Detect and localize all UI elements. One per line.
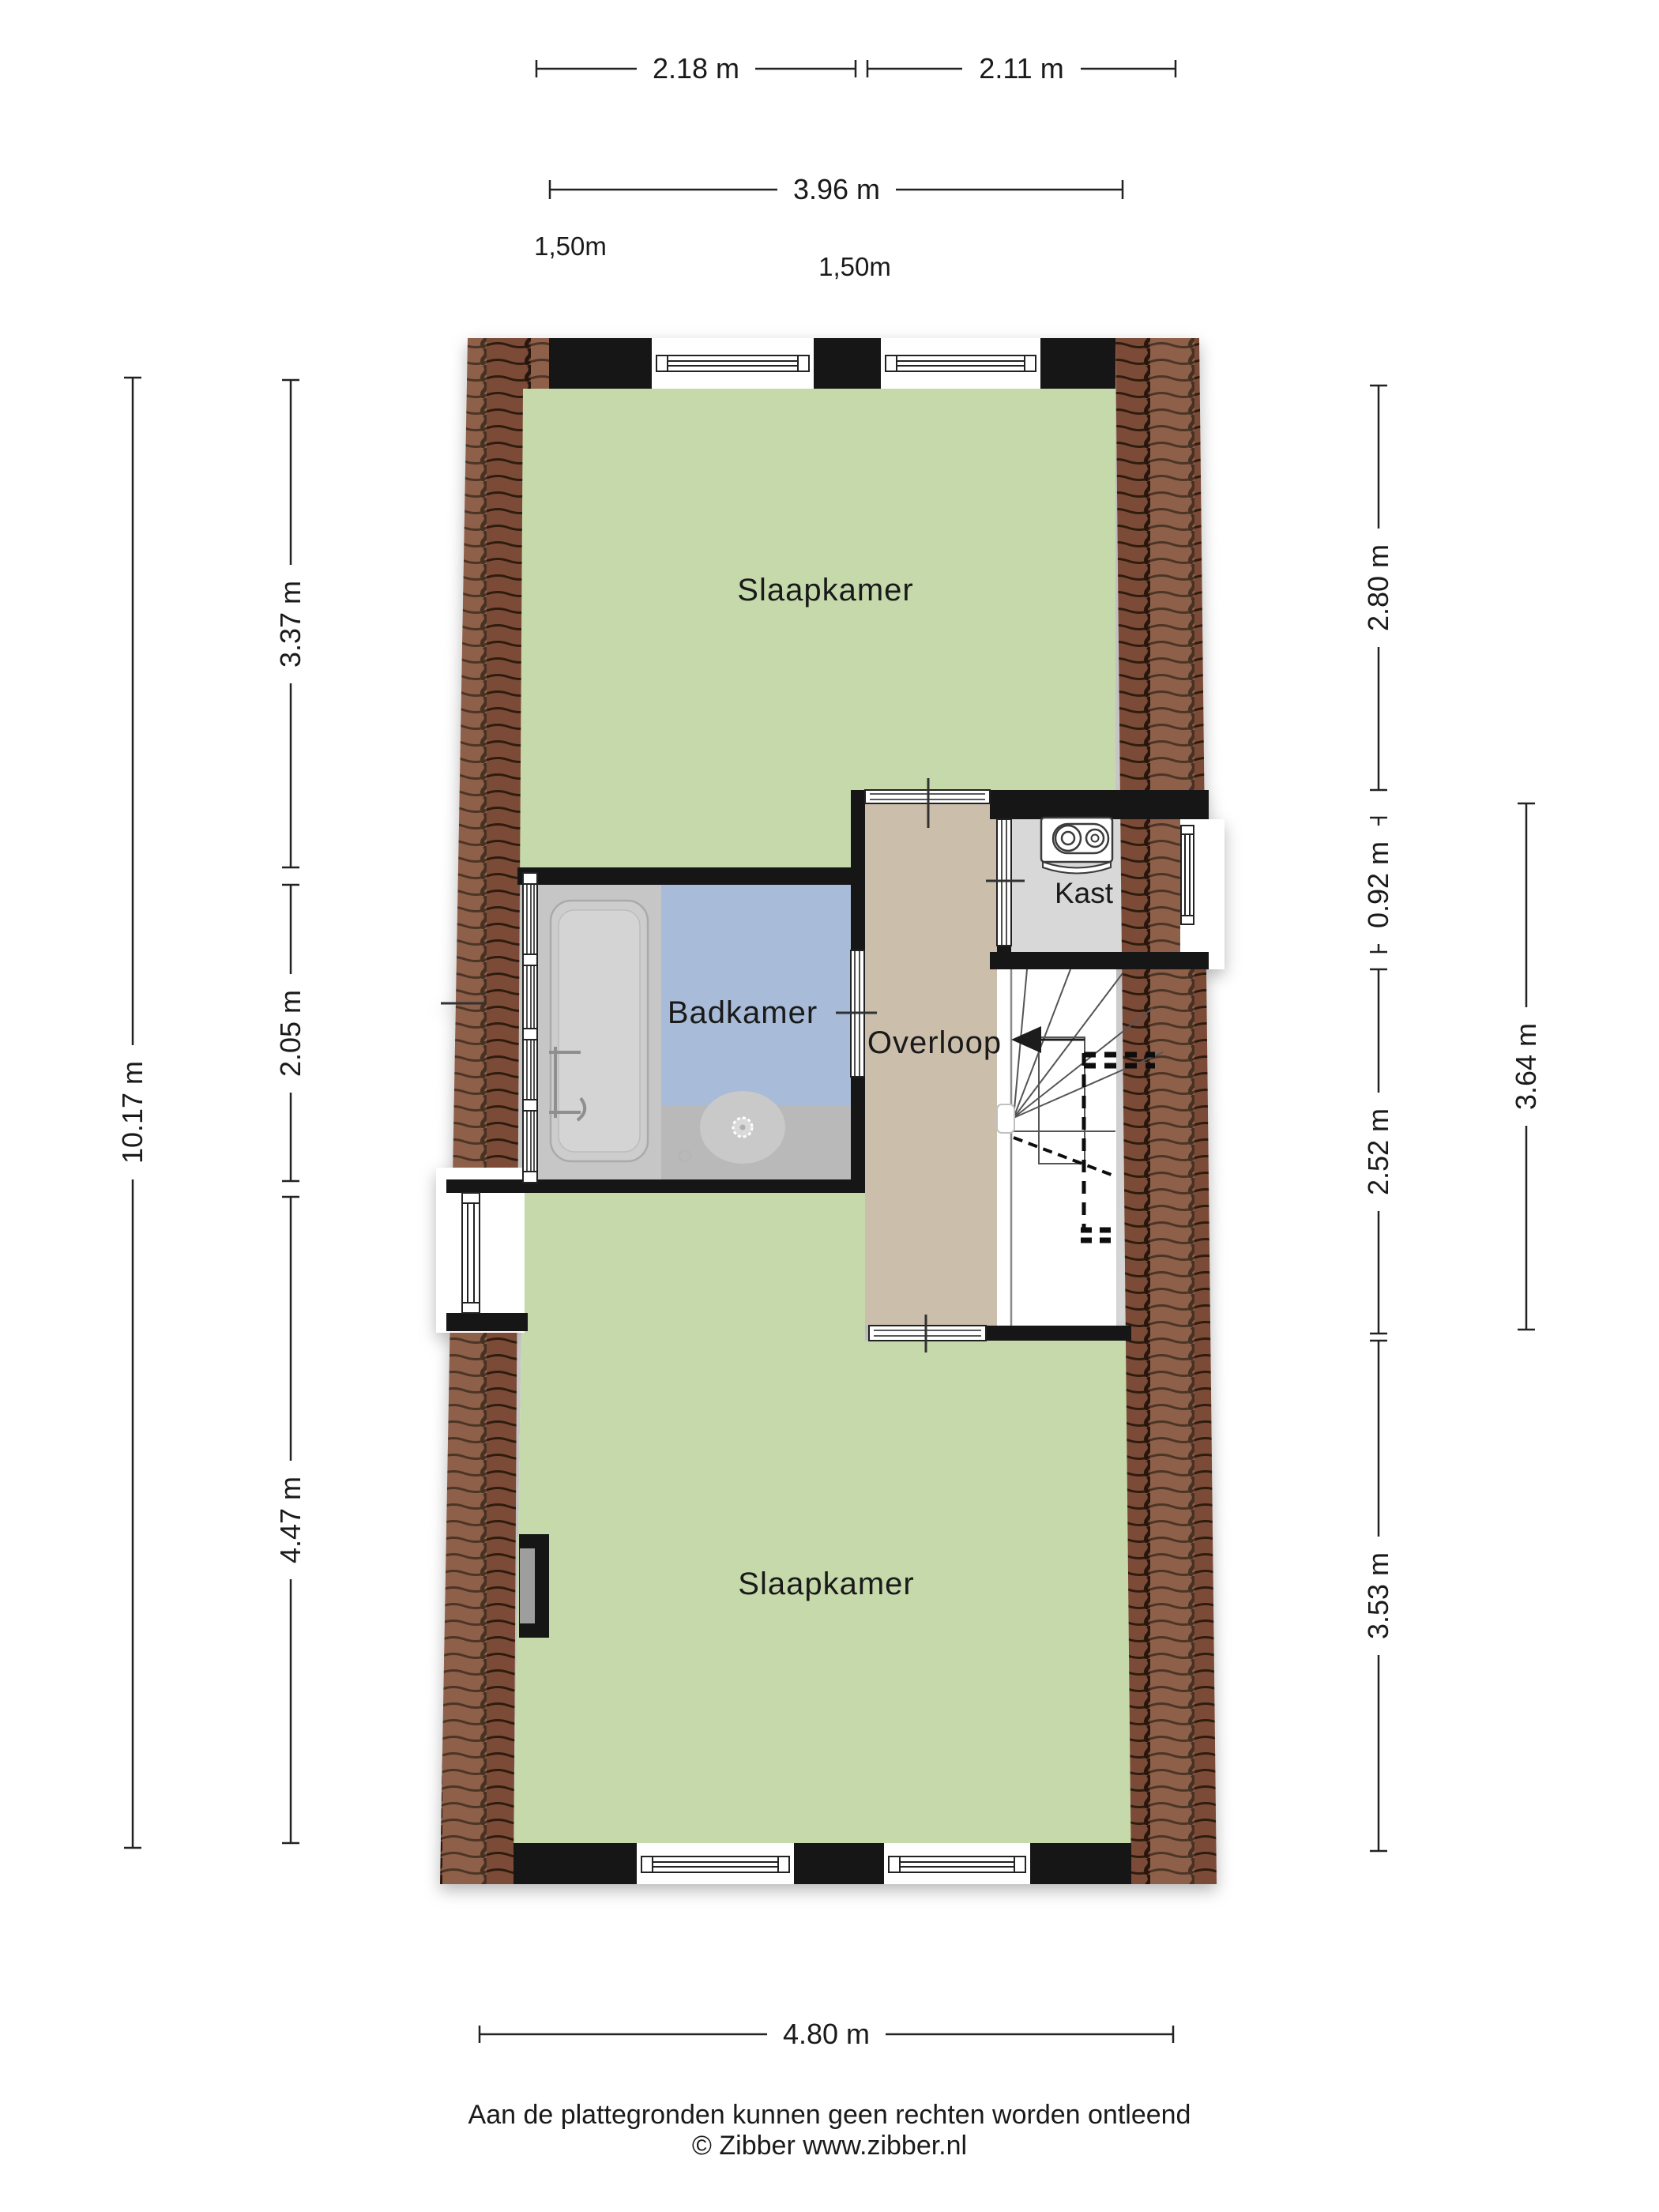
room-label-overloop: Overloop [832,1023,1037,1063]
dim-top-total-396: 3.96 m [777,171,896,209]
window-kast-dormer [1181,826,1194,924]
dim-left-447: 4.47 m [272,1461,310,1579]
roof-tiles-right [1115,338,1217,1884]
dim-left-205: 2.05 m [272,974,310,1093]
window-bottom-2 [884,1843,1030,1884]
dim-top-211: 2.11 m [962,50,1081,88]
chimney-recess [519,1534,549,1638]
dim-right-092: 0.92 m [1360,826,1398,944]
dim-right-353: 3.53 m [1360,1537,1398,1655]
dim-left-outer-1017: 10.17 m [114,1045,152,1179]
room-overloop-floor [865,803,997,1326]
floorplan-drawing [0,0,1659,2212]
room-label-kast: Kast [1021,874,1147,913]
kast-door [997,819,1011,946]
room-label-slaapkamer-bottom: Slaapkamer [700,1564,953,1604]
height-marker-150-right: 1,50m [796,248,914,286]
glazed-knee-wall [523,873,537,1183]
height-marker-150-left: 1,50m [511,228,630,265]
dim-left-337: 3.37 m [272,565,310,683]
bathtub-icon [549,901,648,1161]
room-label-slaapkamer-top: Slaapkamer [699,570,952,610]
dim-right-280: 2.80 m [1360,529,1398,647]
window-bottom-1 [637,1843,794,1884]
dim-right-252: 2.52 m [1360,1093,1398,1211]
dim-bottom-480: 4.80 m [767,2015,886,2053]
window-top-2 [881,338,1040,389]
floorplan-page: Slaapkamer Badkamer Overloop Kast Slaapk… [0,0,1659,2212]
footer-disclaimer: Aan de plattegronden kunnen geen rechten… [0,2097,1659,2132]
dim-top-218: 2.18 m [637,50,755,88]
overloop-bottom-partition [869,1326,986,1341]
room-label-badkamer: Badkamer [640,993,845,1033]
window-top-1 [652,338,814,389]
dim-right-outer-364: 3.64 m [1507,1007,1545,1126]
window-left-dormer [462,1193,480,1313]
footer-copyright: © Zibber www.zibber.nl [0,2128,1659,2163]
